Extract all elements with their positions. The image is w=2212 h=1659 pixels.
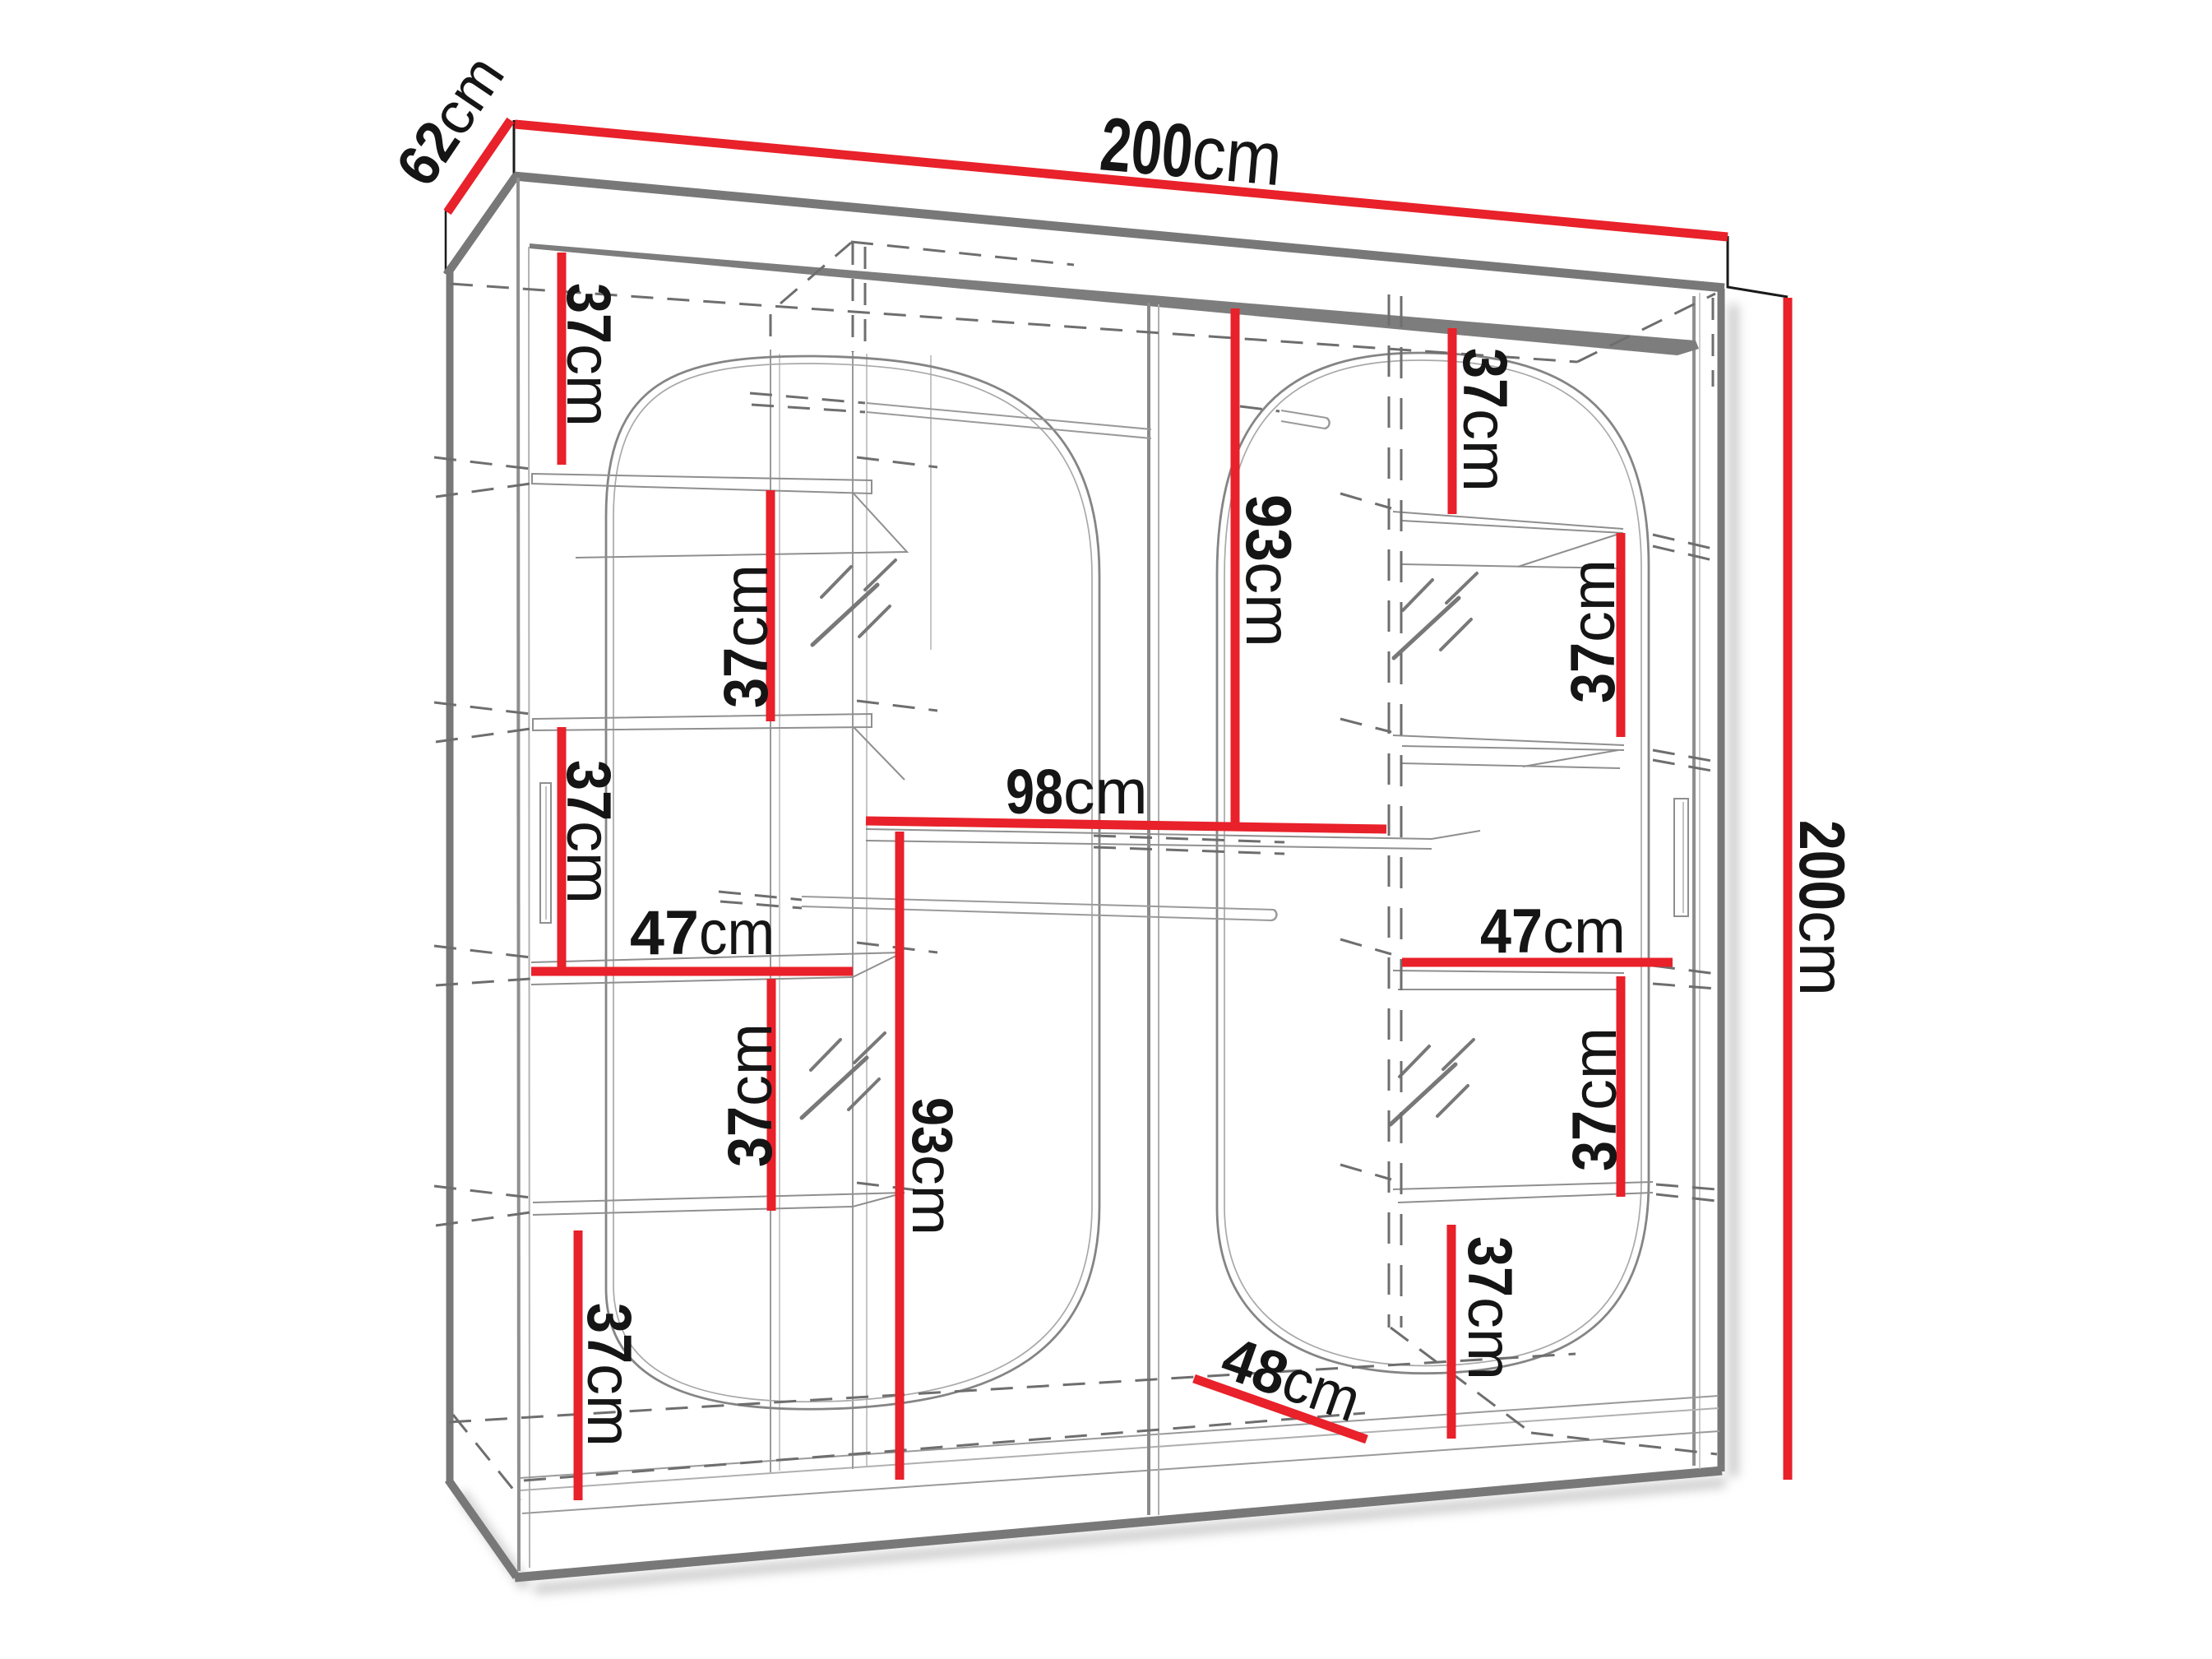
- svg-text:37cm: 37cm: [553, 760, 623, 904]
- svg-text:200cm: 200cm: [1786, 820, 1858, 996]
- svg-text:37cm: 37cm: [1455, 1236, 1525, 1380]
- svg-text:200cm: 200cm: [1097, 102, 1285, 202]
- svg-text:93cm: 93cm: [1233, 494, 1305, 647]
- svg-text:98cm: 98cm: [1006, 757, 1148, 827]
- svg-text:37cm: 37cm: [1558, 559, 1628, 703]
- svg-text:37cm: 37cm: [1560, 1027, 1630, 1171]
- svg-text:37cm: 37cm: [553, 283, 623, 427]
- svg-text:47cm: 47cm: [630, 898, 775, 968]
- svg-text:47cm: 47cm: [1480, 897, 1626, 966]
- svg-text:37cm: 37cm: [1450, 348, 1520, 492]
- svg-text:93cm: 93cm: [900, 1097, 965, 1235]
- svg-text:37cm: 37cm: [715, 1023, 785, 1167]
- svg-text:37cm: 37cm: [574, 1303, 644, 1447]
- svg-text:37cm: 37cm: [711, 564, 781, 708]
